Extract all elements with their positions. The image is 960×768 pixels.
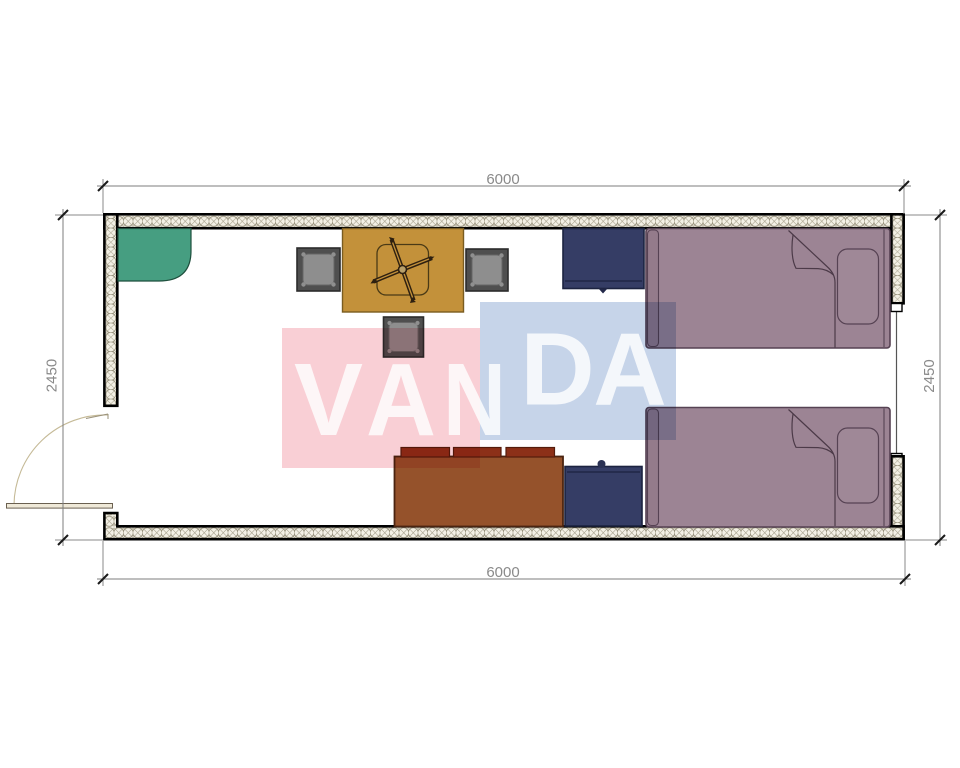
svg-text:A: A (366, 342, 436, 457)
svg-text:D: D (520, 312, 595, 427)
svg-text:V: V (294, 342, 363, 457)
svg-text:N: N (443, 342, 506, 457)
svg-text:A: A (593, 312, 667, 427)
svg-text:6000: 6000 (486, 564, 519, 581)
svg-text:2450: 2450 (44, 359, 61, 392)
svg-text:6000: 6000 (486, 171, 519, 188)
svg-text:2450: 2450 (921, 359, 938, 392)
